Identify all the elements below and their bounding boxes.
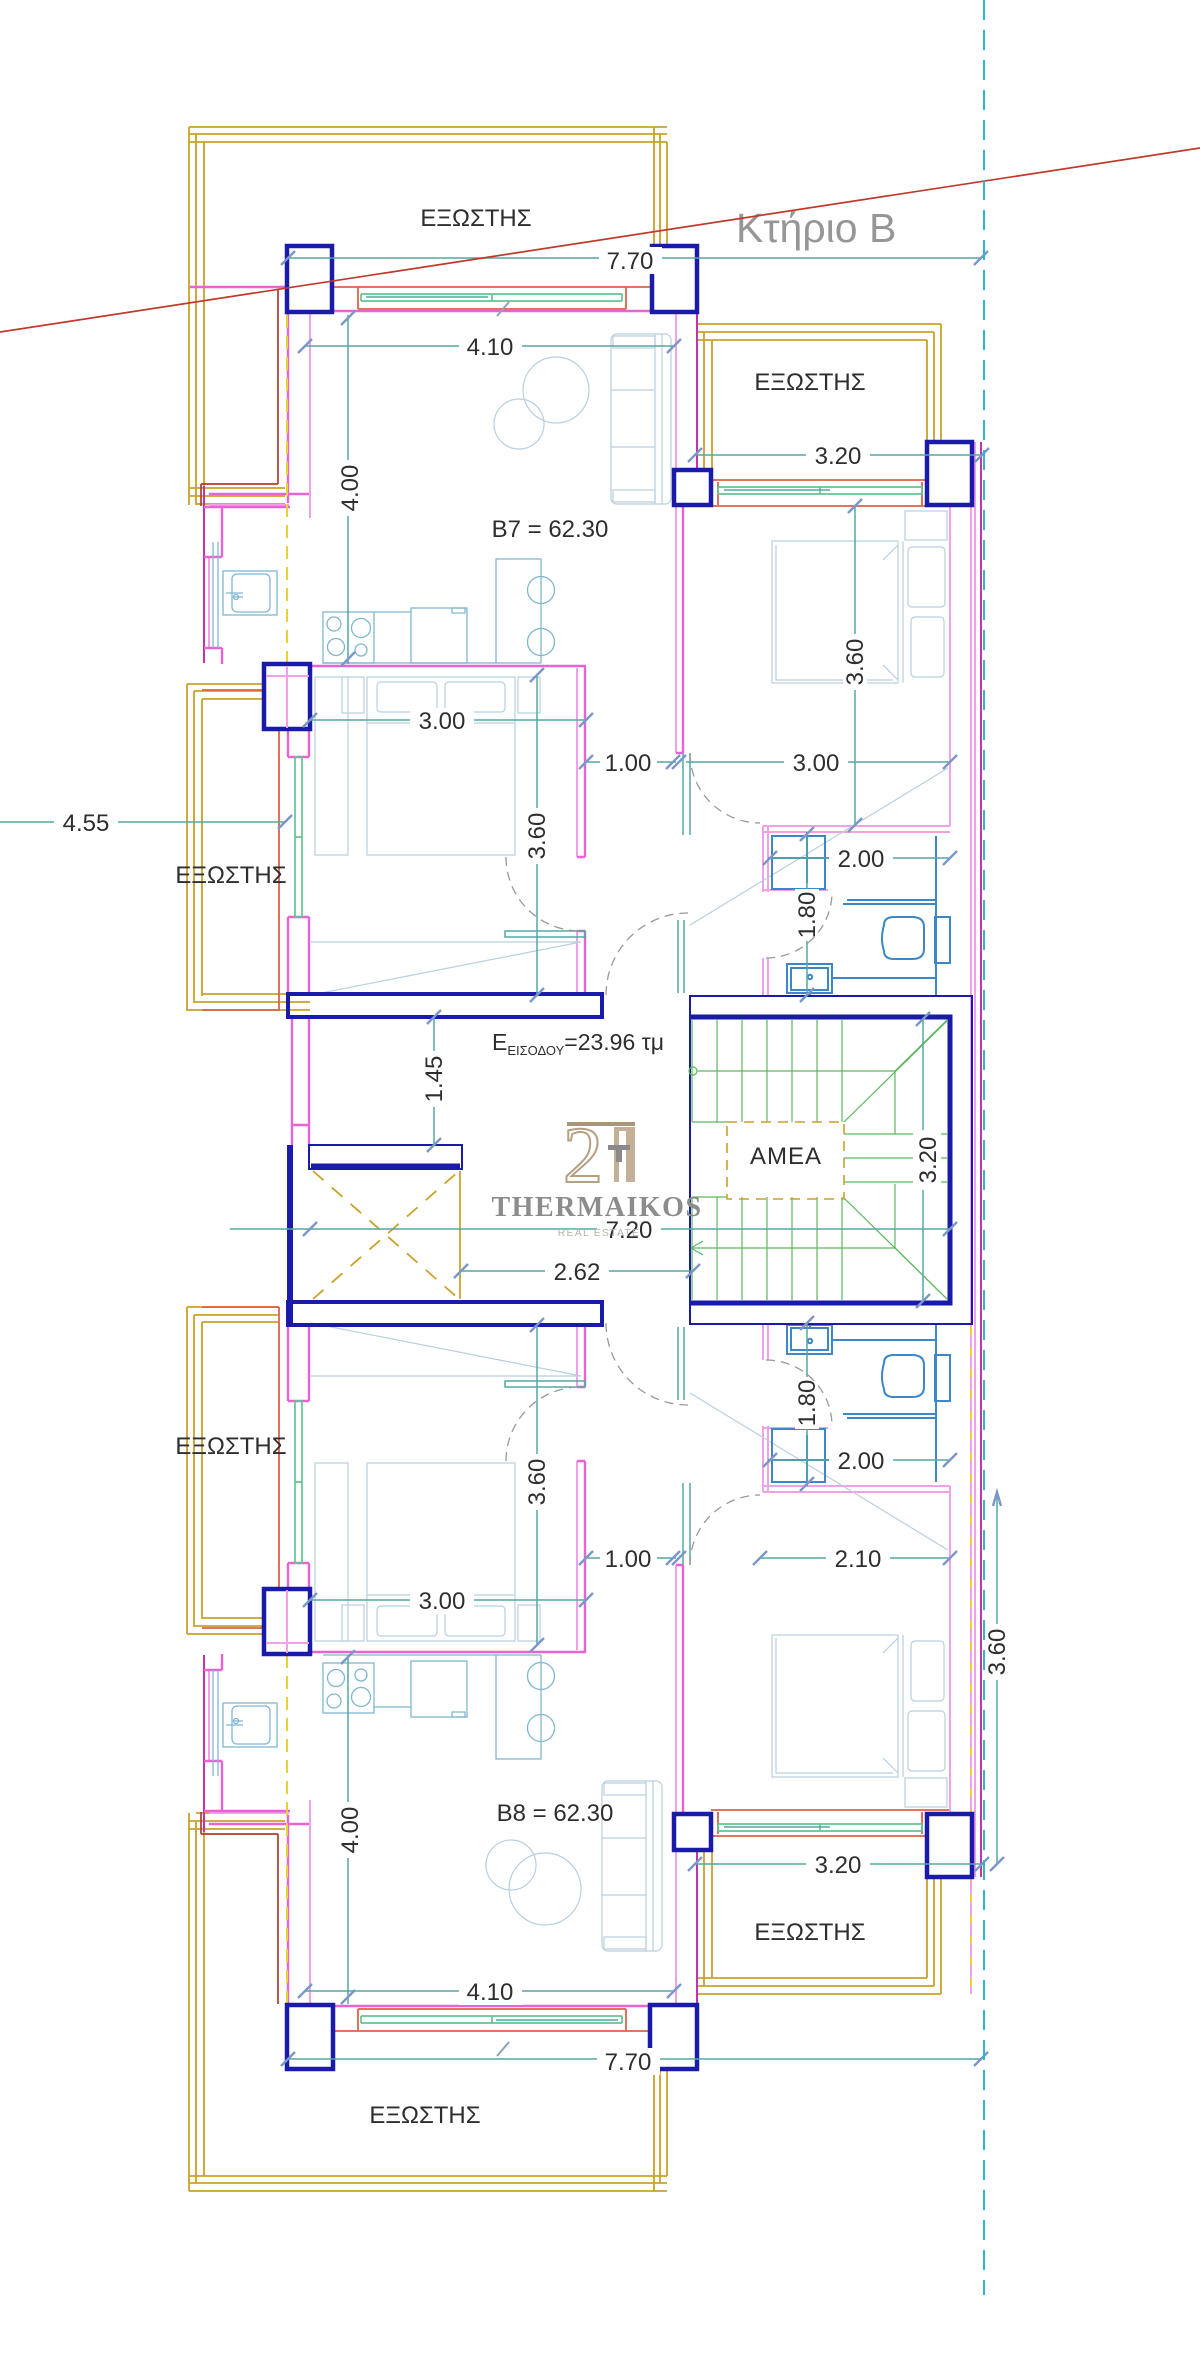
svg-text:1.00: 1.00 [605,1546,652,1573]
svg-text:4.00: 4.00 [337,465,364,512]
svg-text:REAL ESTATE: REAL ESTATE [558,1227,640,1239]
svg-text:1.00: 1.00 [605,750,652,777]
svg-text:1.80: 1.80 [794,892,821,939]
svg-text:3.00: 3.00 [419,1588,466,1615]
svg-text:ΕΞΩΣΤΗΣ: ΕΞΩΣΤΗΣ [420,205,531,232]
svg-text:1.80: 1.80 [794,1380,821,1427]
svg-text:3.00: 3.00 [793,750,840,777]
svg-text:B8 = 62.30: B8 = 62.30 [497,1800,614,1827]
svg-text:3.00: 3.00 [419,708,466,735]
svg-text:1.45: 1.45 [421,1056,448,1103]
svg-text:2.10: 2.10 [835,1546,882,1573]
svg-text:4.10: 4.10 [467,1979,514,2006]
svg-text:ΕΞΩΣΤΗΣ: ΕΞΩΣΤΗΣ [754,369,865,396]
svg-text:2.62: 2.62 [554,1259,601,1286]
svg-text:3.20: 3.20 [915,1137,942,1184]
svg-text:3.60: 3.60 [984,1629,1011,1676]
svg-text:2.00: 2.00 [838,1448,885,1475]
svg-text:7.70: 7.70 [605,2049,652,2076]
svg-text:2.00: 2.00 [838,846,885,873]
svg-text:2: 2 [563,1112,603,1200]
svg-text:4.10: 4.10 [467,334,514,361]
svg-text:4.00: 4.00 [337,1807,364,1854]
svg-text:3.60: 3.60 [524,813,551,860]
svg-text:ΕΞΩΣΤΗΣ: ΕΞΩΣΤΗΣ [754,1919,865,1946]
svg-text:3.20: 3.20 [815,1852,862,1879]
svg-text:THERMAIKOS: THERMAIKOS [491,1192,702,1223]
svg-text:ΑΜΕΑ: ΑΜΕΑ [750,1143,822,1170]
svg-text:3.20: 3.20 [815,443,862,470]
svg-text:3.60: 3.60 [524,1459,551,1506]
svg-text:ΕΞΩΣΤΗΣ: ΕΞΩΣΤΗΣ [175,1433,286,1460]
svg-text:4.55: 4.55 [63,810,110,837]
svg-text:B7 = 62.30: B7 = 62.30 [492,516,609,543]
svg-text:Κτήριο Β: Κτήριο Β [736,205,896,251]
svg-text:3.60: 3.60 [842,639,869,686]
svg-text:7.70: 7.70 [607,248,654,275]
svg-text:ΕΞΩΣΤΗΣ: ΕΞΩΣΤΗΣ [175,862,286,889]
svg-text:ΕΞΩΣΤΗΣ: ΕΞΩΣΤΗΣ [369,2102,480,2129]
